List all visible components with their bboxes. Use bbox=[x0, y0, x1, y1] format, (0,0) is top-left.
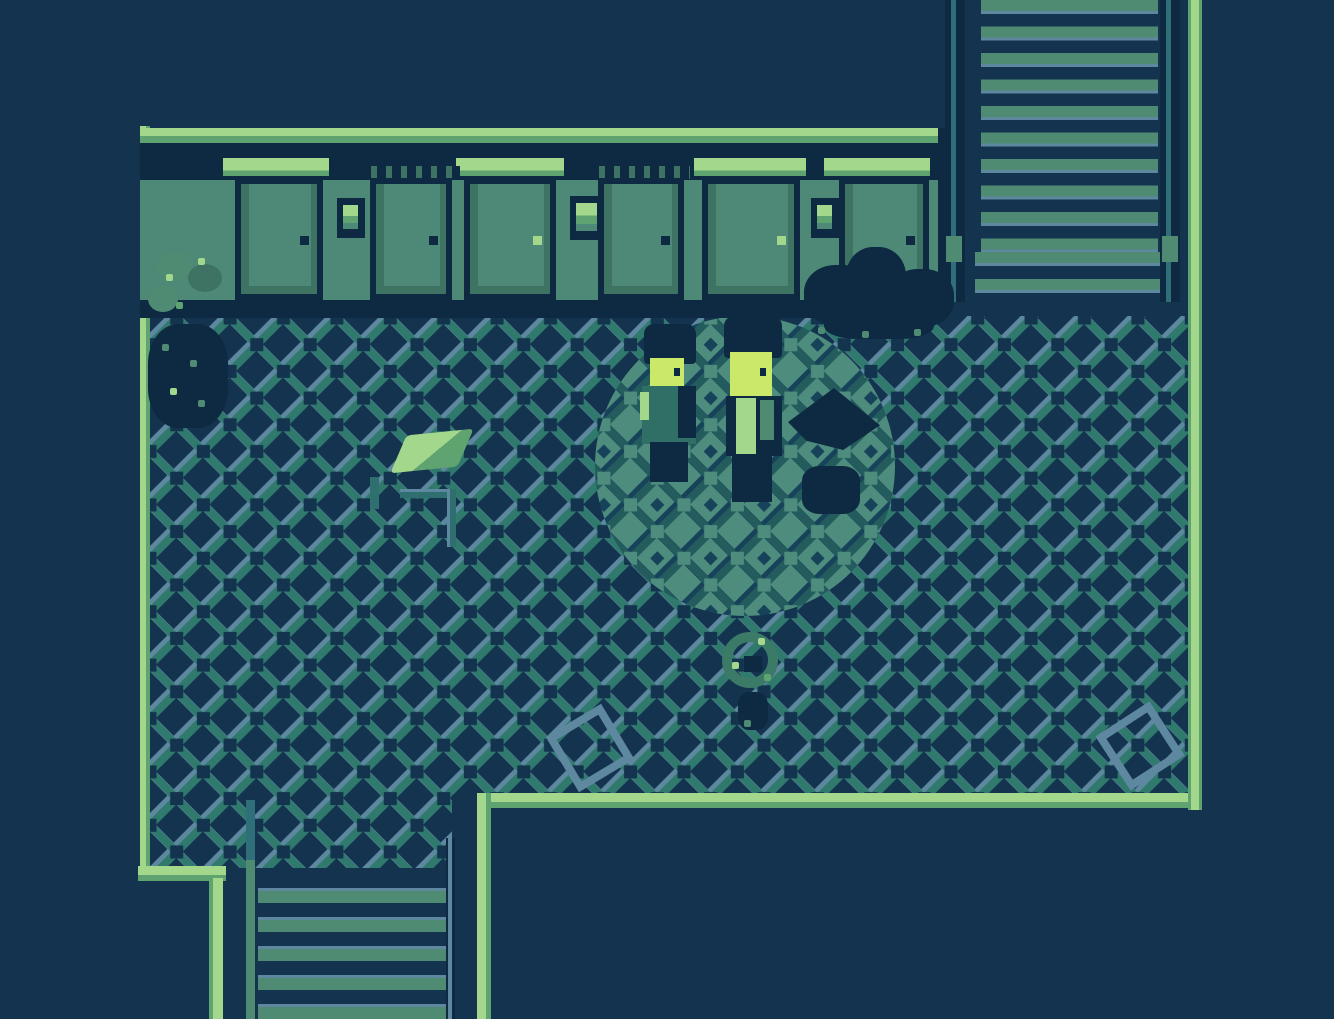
character-left-arm-highlight bbox=[640, 392, 649, 420]
door-5-handle bbox=[777, 236, 786, 245]
staircase-up[interactable] bbox=[935, 0, 1190, 318]
nameplate-3-text-lines bbox=[817, 205, 832, 229]
door-3-handle bbox=[533, 236, 542, 245]
small-figure-lower bbox=[738, 692, 768, 730]
character-right-vest bbox=[760, 400, 774, 440]
stair-landing[interactable] bbox=[975, 252, 1165, 306]
character-right-vest-highlight bbox=[736, 398, 756, 454]
nameplate-1-text-lines bbox=[343, 205, 358, 229]
nameplate-1 bbox=[337, 198, 365, 238]
character-right[interactable] bbox=[718, 316, 790, 502]
door-4[interactable] bbox=[598, 178, 684, 300]
floor-scrape-mark-3 bbox=[447, 489, 456, 547]
wall-top-highlight bbox=[140, 128, 938, 136]
door-6-transom bbox=[821, 155, 933, 179]
newel-post-right bbox=[1162, 236, 1178, 262]
door-5-transom bbox=[691, 155, 809, 179]
small-figure-core bbox=[744, 656, 762, 672]
stairwell-wall-right bbox=[446, 838, 455, 1019]
floor-scrape-mark-1 bbox=[370, 477, 379, 509]
door-1-handle bbox=[300, 236, 309, 245]
game-screen bbox=[0, 0, 1334, 1019]
door-3-transom bbox=[453, 155, 567, 179]
potted-plant bbox=[146, 248, 236, 432]
floor-shadow-blob bbox=[802, 466, 860, 514]
stairwell-border-left bbox=[209, 878, 223, 1019]
character-left-eye bbox=[674, 368, 680, 376]
staircase-down[interactable] bbox=[258, 874, 446, 1019]
character-right-legs bbox=[732, 456, 772, 502]
character-right-eye bbox=[760, 368, 766, 376]
door-1-transom bbox=[220, 155, 332, 179]
shadow-bush bbox=[796, 243, 960, 339]
door-2-handle bbox=[429, 236, 438, 245]
wall-border-corner bbox=[477, 793, 491, 1019]
stairwell-wall-left bbox=[246, 800, 255, 1019]
door-2[interactable] bbox=[370, 178, 452, 300]
door-4-handle bbox=[661, 236, 670, 245]
nameplate-2-text-lines bbox=[576, 203, 597, 231]
door-3[interactable] bbox=[464, 178, 556, 300]
wall-border-south bbox=[490, 793, 1192, 808]
character-left-arm bbox=[678, 386, 696, 438]
door-1[interactable] bbox=[235, 178, 323, 300]
nameplate-3 bbox=[811, 198, 839, 238]
nameplate-2 bbox=[570, 196, 604, 240]
small-figure-in-dark[interactable] bbox=[714, 624, 792, 736]
character-left-legs bbox=[650, 442, 688, 482]
wall-top-shade bbox=[140, 136, 938, 143]
wall-border-right bbox=[1188, 0, 1202, 810]
character-left[interactable] bbox=[640, 324, 700, 484]
door-5[interactable] bbox=[702, 178, 800, 300]
